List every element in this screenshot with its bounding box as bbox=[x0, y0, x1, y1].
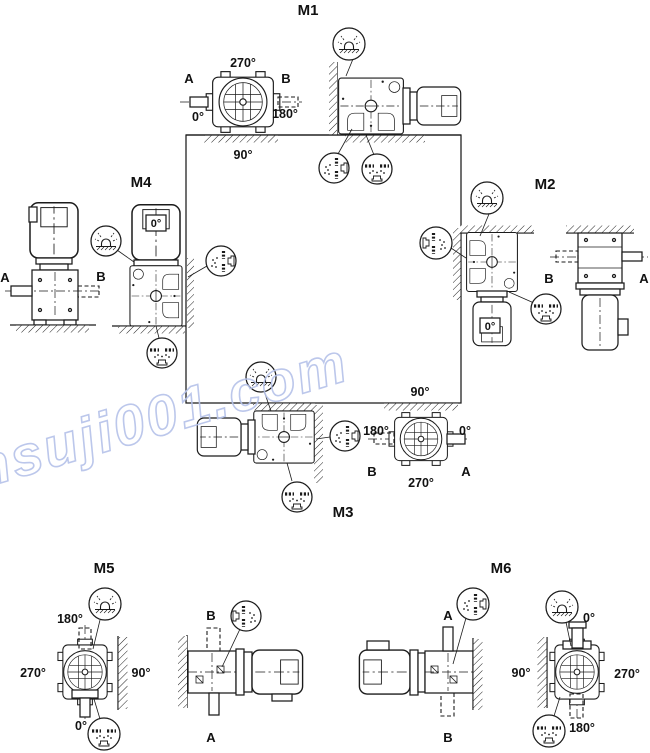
m3-angle-top: 90° bbox=[411, 385, 430, 399]
m5-shaft-b-label: B bbox=[206, 608, 215, 623]
gearbox-mounting-positions-diagram: www.jiansuji001.com M1 270° A B 0° 180° … bbox=[0, 0, 650, 753]
m6-shaft-b-label: B bbox=[443, 730, 452, 745]
m1-angle-bottom: 90° bbox=[234, 148, 253, 162]
m3-angle-left: 180° bbox=[363, 424, 389, 438]
m6-title: M6 bbox=[491, 560, 512, 577]
m1-angle-top: 270° bbox=[230, 56, 256, 70]
m5-angle-right: 90° bbox=[132, 666, 151, 680]
m1-angle-left: 0° bbox=[192, 110, 204, 124]
m4-shaft-b-label: B bbox=[96, 269, 105, 284]
m3-shaft-a-label: A bbox=[461, 464, 471, 479]
m1-angle-right: 180° bbox=[272, 107, 298, 121]
m6-angle-left: 90° bbox=[512, 666, 531, 680]
m3-angle-bottom: 270° bbox=[408, 476, 434, 490]
m1-title: M1 bbox=[298, 2, 319, 19]
m1-shaft-b-label: B bbox=[281, 71, 290, 86]
m5-title: M5 bbox=[94, 560, 115, 577]
m5-angle-bottom: 0° bbox=[75, 719, 87, 733]
m6-side-view bbox=[359, 588, 489, 716]
m4-side-view bbox=[91, 205, 236, 368]
m2-shaft-b-label: B bbox=[544, 271, 553, 286]
m2-title: M2 bbox=[535, 176, 556, 193]
m3-shaft-b-label: B bbox=[367, 464, 376, 479]
m4-title: M4 bbox=[131, 174, 152, 191]
m2-output-view bbox=[550, 226, 648, 351]
m6-angle-right: 270° bbox=[614, 667, 640, 681]
m3-title: M3 bbox=[333, 504, 354, 521]
m6-shaft-a-label: A bbox=[443, 608, 453, 623]
m5-shaft-a-label: A bbox=[206, 730, 216, 745]
m2-shaft-a-label: A bbox=[639, 271, 649, 286]
m2-motor-angle: 0° bbox=[485, 321, 496, 333]
m1-shaft-a-label: A bbox=[184, 71, 194, 86]
m6-angle-bottom: 180° bbox=[569, 721, 595, 735]
m3-angle-right: 0° bbox=[459, 424, 471, 438]
m6-angle-top: 0° bbox=[583, 611, 595, 625]
diagram-canvas: www.jiansuji001.com M1 270° A B 0° 180° … bbox=[0, 0, 650, 753]
m4-shaft-a-label: A bbox=[0, 270, 10, 285]
m5-angle-top: 180° bbox=[57, 612, 83, 626]
m4-motor-angle: 0° bbox=[151, 218, 162, 230]
m4-front-view bbox=[5, 203, 100, 333]
m5-side-view bbox=[178, 601, 303, 715]
m5-angle-left: 270° bbox=[20, 666, 46, 680]
